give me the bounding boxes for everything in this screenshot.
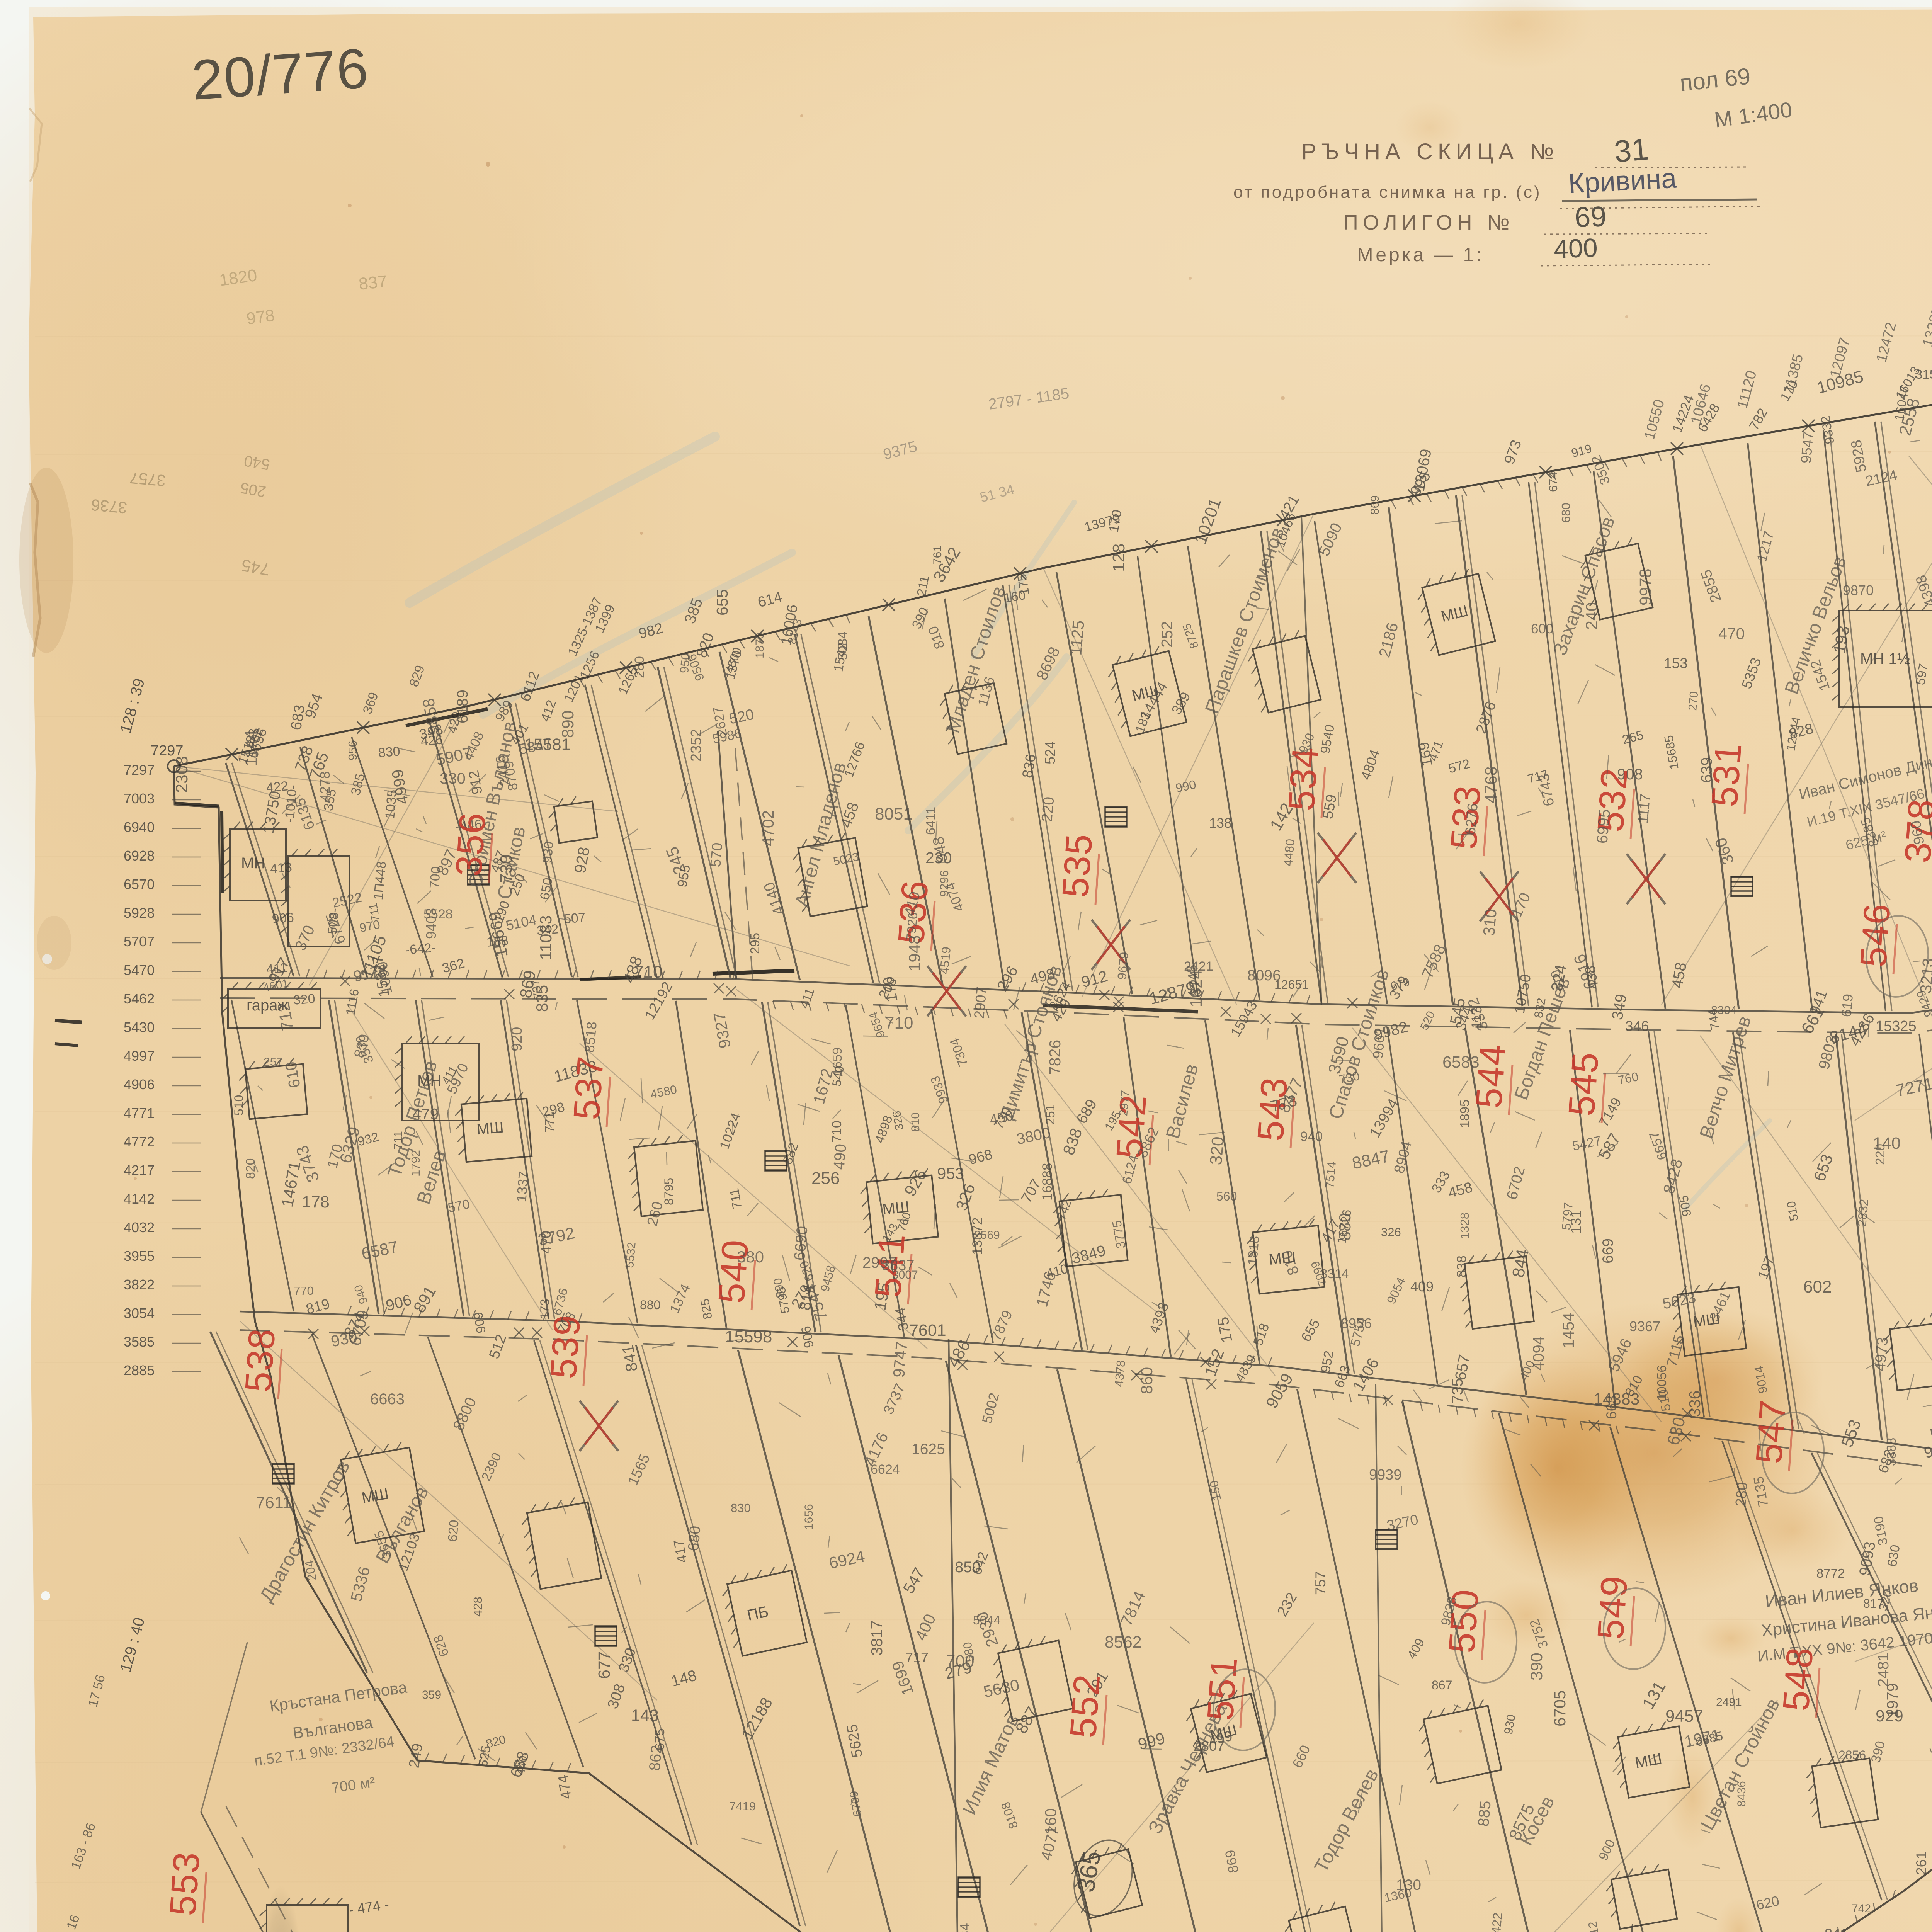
svg-text:2856: 2856 (1838, 1748, 1866, 1762)
svg-text:7297: 7297 (124, 762, 155, 778)
svg-text:252: 252 (1158, 621, 1176, 648)
svg-text:5928: 5928 (124, 905, 155, 921)
svg-text:470: 470 (1718, 625, 1745, 643)
svg-text:8772: 8772 (1816, 1566, 1845, 1580)
svg-text:320: 320 (293, 991, 316, 1008)
svg-text:880: 880 (640, 1298, 660, 1312)
svg-text:539: 539 (543, 1313, 588, 1380)
svg-text:552: 552 (1062, 1672, 1108, 1739)
svg-text:5084: 5084 (835, 632, 850, 660)
svg-text:295: 295 (748, 933, 762, 954)
svg-text:3585: 3585 (124, 1334, 155, 1350)
svg-text:МШ: МШ (476, 1119, 505, 1138)
svg-text:4094: 4094 (1530, 1336, 1547, 1371)
svg-text:251: 251 (1043, 1104, 1057, 1125)
svg-text:280: 280 (632, 656, 647, 678)
svg-text:4378: 4378 (1112, 1360, 1128, 1388)
svg-text:31: 31 (1613, 132, 1650, 169)
svg-text:8304: 8304 (1711, 1004, 1737, 1017)
svg-text:700: 700 (427, 866, 444, 889)
svg-text:9870: 9870 (1843, 582, 1874, 598)
svg-text:6940: 6940 (124, 819, 155, 835)
svg-text:9978: 9978 (1636, 568, 1655, 605)
svg-text:69: 69 (1574, 200, 1607, 233)
svg-text:16888: 16888 (1040, 1163, 1055, 1201)
svg-text:531: 531 (1704, 741, 1749, 808)
svg-text:4768: 4768 (1482, 766, 1500, 803)
svg-text:6276: 6276 (1462, 803, 1481, 836)
svg-text:1454: 1454 (1559, 1313, 1577, 1349)
svg-text:428: 428 (471, 1597, 485, 1617)
svg-text:3054: 3054 (124, 1305, 155, 1321)
svg-text:546: 546 (1852, 901, 1898, 968)
svg-text:140: 140 (1873, 1134, 1901, 1153)
svg-text:867: 867 (1432, 1678, 1452, 1692)
svg-text:1870: 1870 (753, 633, 766, 658)
svg-text:6928: 6928 (124, 848, 155, 864)
svg-text:4973: 4973 (1871, 1336, 1891, 1372)
svg-text:535: 535 (1054, 832, 1100, 899)
svg-text:7003: 7003 (124, 791, 155, 806)
svg-text:890: 890 (559, 710, 577, 738)
svg-text:2885: 2885 (124, 1362, 155, 1378)
svg-text:680: 680 (685, 1525, 704, 1552)
svg-text:1125: 1125 (1066, 620, 1088, 656)
svg-text:490: 490 (830, 1143, 850, 1170)
svg-text:8051: 8051 (875, 804, 913, 823)
svg-text:20/776: 20/776 (190, 36, 371, 112)
svg-text:от подробната снимка на гр. (с: от подробната снимка на гр. (с) (1233, 183, 1542, 202)
svg-text:655: 655 (713, 589, 731, 616)
svg-text:956: 956 (346, 740, 359, 760)
svg-text:9457: 9457 (1665, 1707, 1703, 1726)
svg-text:5462: 5462 (124, 991, 155, 1007)
svg-text:390: 390 (1527, 1653, 1546, 1680)
svg-text:2832: 2832 (1855, 1199, 1871, 1227)
svg-text:РЪЧНА СКИЦА №: РЪЧНА СКИЦА № (1301, 139, 1559, 164)
svg-text:1656: 1656 (803, 1504, 815, 1530)
svg-text:837: 837 (358, 272, 388, 294)
svg-text:4702: 4702 (759, 810, 777, 846)
svg-text:409: 409 (1410, 1279, 1434, 1294)
svg-text:6570: 6570 (124, 876, 155, 892)
svg-text:3955: 3955 (124, 1248, 155, 1264)
svg-text:6995: 6995 (1594, 808, 1614, 844)
svg-text:710: 710 (634, 963, 662, 981)
svg-text:6705: 6705 (1551, 1690, 1569, 1726)
svg-text:538: 538 (237, 1327, 283, 1393)
svg-text:830: 830 (378, 744, 401, 760)
svg-text:4906: 4906 (124, 1077, 155, 1092)
svg-text:2308: 2308 (173, 756, 191, 793)
svg-text:4771: 4771 (124, 1105, 155, 1121)
svg-text:310: 310 (1480, 908, 1500, 937)
svg-text:6663: 6663 (370, 1391, 405, 1408)
svg-text:4032: 4032 (124, 1219, 155, 1235)
svg-text:717: 717 (905, 1650, 929, 1665)
svg-text:830: 830 (731, 1501, 751, 1515)
svg-text:240: 240 (1583, 602, 1601, 630)
svg-text:4142: 4142 (124, 1191, 155, 1207)
svg-text:669: 669 (1600, 1238, 1616, 1264)
svg-text:Мерка — 1:: Мерка — 1: (1357, 244, 1484, 265)
svg-text:Кривина: Кривина (1568, 163, 1678, 199)
svg-text:1818: 1818 (1245, 1235, 1262, 1266)
svg-text:885: 885 (1475, 1800, 1494, 1827)
svg-text:1337: 1337 (513, 1170, 532, 1202)
svg-text:680: 680 (1559, 503, 1573, 523)
svg-text:8956: 8956 (1341, 1315, 1372, 1331)
svg-text:524: 524 (1042, 741, 1058, 764)
svg-text:537: 537 (566, 1054, 611, 1121)
svg-text:МН: МН (241, 855, 265, 872)
svg-text:7419: 7419 (729, 1799, 756, 1813)
svg-text:320: 320 (1206, 1136, 1228, 1165)
svg-text:9547: 9547 (1798, 431, 1816, 464)
svg-text:3822: 3822 (124, 1277, 155, 1293)
svg-text:178: 178 (302, 1193, 330, 1211)
svg-text:4217: 4217 (124, 1162, 155, 1178)
svg-text:600: 600 (1531, 621, 1553, 636)
svg-text:315: 315 (1915, 367, 1932, 381)
svg-text:330: 330 (440, 770, 466, 787)
svg-text:4519: 4519 (937, 946, 953, 975)
svg-text:619: 619 (1838, 993, 1856, 1017)
svg-text:551: 551 (1199, 1655, 1245, 1722)
svg-text:5044: 5044 (973, 1613, 1000, 1627)
svg-text:220: 220 (1039, 796, 1058, 823)
svg-text:710: 710 (830, 1121, 844, 1143)
svg-text:143: 143 (631, 1706, 659, 1725)
svg-text:771: 771 (543, 1112, 556, 1133)
svg-text:9679: 9679 (1115, 952, 1131, 980)
svg-text:1792: 1792 (409, 1150, 422, 1177)
svg-text:953: 953 (937, 1164, 964, 1182)
svg-text:413: 413 (269, 860, 293, 876)
svg-text:6690: 6690 (791, 1225, 811, 1261)
svg-text:5532: 5532 (623, 1242, 638, 1268)
svg-text:6422: 6422 (1488, 1912, 1505, 1932)
svg-text:15325: 15325 (1876, 1018, 1917, 1034)
svg-text:9296: 9296 (937, 870, 951, 897)
svg-text:346: 346 (1625, 1018, 1649, 1034)
svg-text:862: 862 (646, 1744, 665, 1771)
svg-text:940: 940 (1300, 1129, 1323, 1144)
svg-text:3314: 3314 (1320, 1267, 1349, 1281)
svg-text:1144: 1144 (242, 730, 261, 767)
svg-text:810: 810 (909, 1112, 922, 1132)
svg-text:838: 838 (1454, 1255, 1469, 1277)
svg-text:663: 663 (1604, 1395, 1619, 1419)
svg-text:920: 920 (509, 1027, 525, 1051)
svg-text:6583: 6583 (1442, 1053, 1480, 1071)
svg-text:7826: 7826 (1046, 1040, 1064, 1075)
svg-text:326: 326 (1381, 1225, 1401, 1239)
svg-text:2352: 2352 (688, 729, 704, 762)
svg-text:841: 841 (1825, 1926, 1848, 1932)
svg-text:380: 380 (737, 1248, 764, 1266)
svg-text:547: 547 (1748, 1398, 1794, 1465)
svg-text:270: 270 (1686, 691, 1701, 711)
svg-text:9661: 9661 (1370, 1026, 1388, 1060)
svg-text:7611: 7611 (256, 1493, 291, 1512)
svg-text:2491: 2491 (1716, 1696, 1742, 1709)
svg-text:1625: 1625 (912, 1441, 945, 1458)
svg-text:9939: 9939 (1369, 1467, 1402, 1483)
svg-text:4278: 4278 (318, 771, 333, 801)
svg-text:7926: 7926 (903, 912, 920, 941)
svg-text:2569: 2569 (974, 1229, 1000, 1242)
svg-text:710: 710 (885, 1014, 913, 1032)
svg-text:15598: 15598 (725, 1327, 772, 1346)
svg-text:3736: 3736 (90, 496, 128, 517)
svg-text:356: 356 (448, 811, 493, 878)
svg-text:742: 742 (1852, 1902, 1871, 1915)
svg-text:548: 548 (1775, 1645, 1821, 1712)
svg-text:3388: 3388 (1884, 1438, 1898, 1466)
svg-text:2997: 2997 (862, 1254, 897, 1271)
svg-text:128: 128 (1109, 544, 1128, 572)
svg-text:4480: 4480 (1281, 838, 1297, 867)
svg-text:677: 677 (595, 1651, 614, 1679)
svg-text:5528: 5528 (423, 907, 453, 922)
svg-text:978: 978 (245, 306, 276, 328)
svg-text:880: 880 (1336, 1213, 1354, 1241)
svg-text:261: 261 (1913, 1851, 1929, 1875)
svg-text:8096: 8096 (1247, 967, 1281, 984)
svg-text:8518: 8518 (581, 1021, 600, 1053)
svg-text:860: 860 (1138, 1367, 1156, 1394)
svg-text:400: 400 (1553, 233, 1598, 264)
svg-text:757: 757 (1313, 1571, 1328, 1595)
svg-text:620: 620 (445, 1519, 462, 1543)
svg-text:7514: 7514 (1323, 1161, 1338, 1189)
svg-text:3213: 3213 (1917, 957, 1932, 994)
svg-text:3757: 3757 (129, 469, 167, 490)
svg-text:9367: 9367 (1629, 1318, 1660, 1334)
svg-text:153: 153 (1664, 655, 1688, 671)
svg-text:МН 1½: МН 1½ (1860, 650, 1910, 667)
svg-text:2034: 2034 (957, 1923, 973, 1932)
svg-text:570: 570 (707, 842, 726, 868)
svg-text:257: 257 (264, 1056, 283, 1068)
svg-text:835: 835 (533, 985, 551, 1012)
svg-text:602: 602 (1803, 1277, 1832, 1296)
svg-text:2907: 2907 (971, 986, 990, 1019)
svg-text:8436: 8436 (1735, 1781, 1748, 1807)
svg-text:929: 929 (1876, 1707, 1903, 1725)
svg-text:700: 700 (946, 1652, 974, 1671)
svg-text:3817: 3817 (868, 1621, 886, 1656)
svg-text:4772: 4772 (124, 1134, 155, 1150)
svg-text:560: 560 (1216, 1189, 1237, 1203)
svg-text:770: 770 (294, 1284, 314, 1298)
svg-text:1117: 1117 (1635, 793, 1653, 824)
svg-text:869: 869 (1369, 495, 1381, 515)
svg-text:138: 138 (1209, 816, 1231, 831)
svg-text:130: 130 (1396, 1877, 1421, 1893)
svg-text:510: 510 (232, 1095, 246, 1116)
svg-text:4997: 4997 (124, 1048, 155, 1064)
svg-text:8795: 8795 (662, 1178, 676, 1205)
svg-text:534: 534 (1281, 745, 1326, 812)
svg-text:256: 256 (811, 1169, 840, 1188)
svg-text:1328: 1328 (1458, 1213, 1471, 1239)
svg-text:545: 545 (1561, 1050, 1606, 1117)
svg-text:6189: 6189 (454, 690, 471, 723)
svg-text:280: 280 (1733, 1481, 1751, 1507)
svg-text:2481: 2481 (1875, 1653, 1892, 1687)
svg-text:553: 553 (162, 1850, 207, 1917)
svg-text:7601: 7601 (909, 1321, 946, 1340)
svg-text:11083: 11083 (537, 915, 555, 960)
svg-text:549: 549 (1590, 1574, 1635, 1641)
svg-text:820: 820 (243, 1158, 257, 1179)
svg-text:ПОЛИГОН №: ПОЛИГОН № (1343, 211, 1514, 234)
svg-text:5797: 5797 (1559, 1202, 1575, 1231)
svg-text:5470: 5470 (124, 962, 155, 978)
svg-text:359: 359 (422, 1689, 441, 1701)
svg-text:5430: 5430 (124, 1019, 155, 1035)
svg-text:9747: 9747 (889, 1341, 911, 1378)
svg-text:5707: 5707 (124, 934, 155, 949)
svg-text:160: 160 (1042, 1808, 1060, 1835)
svg-text:930: 930 (540, 841, 556, 864)
svg-text:8562: 8562 (1105, 1633, 1142, 1651)
svg-text:2977: 2977 (1117, 1090, 1132, 1116)
